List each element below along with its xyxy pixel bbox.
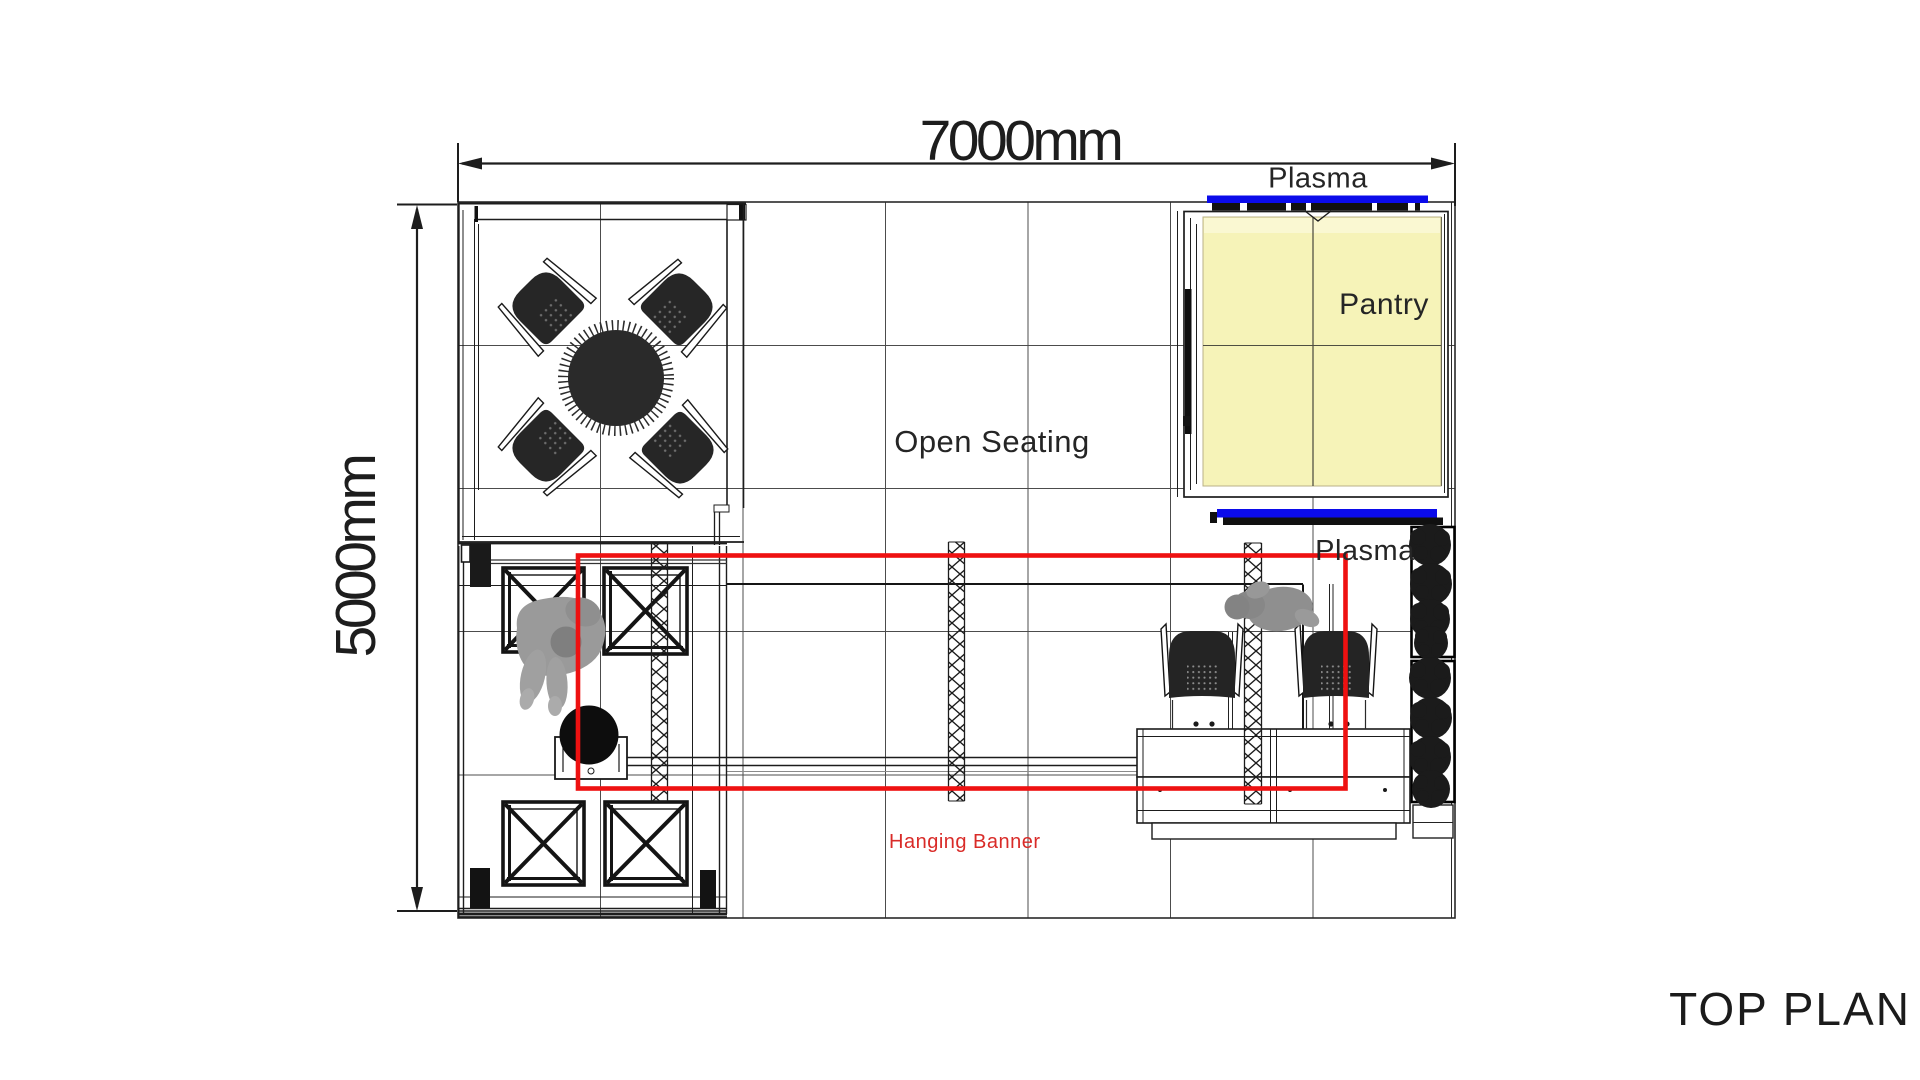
svg-text:Plasma: Plasma (1315, 535, 1415, 567)
svg-text:Hanging Banner: Hanging Banner (889, 831, 1041, 853)
svg-text:5000mm: 5000mm (324, 457, 388, 658)
svg-text:Plasma: Plasma (1268, 163, 1368, 195)
svg-text:Open Seating: Open Seating (894, 424, 1090, 459)
svg-text:TOP PLAN: TOP PLAN (1669, 983, 1911, 1035)
svg-text:7000mm: 7000mm (920, 109, 1121, 173)
svg-text:Pantry: Pantry (1339, 288, 1429, 321)
